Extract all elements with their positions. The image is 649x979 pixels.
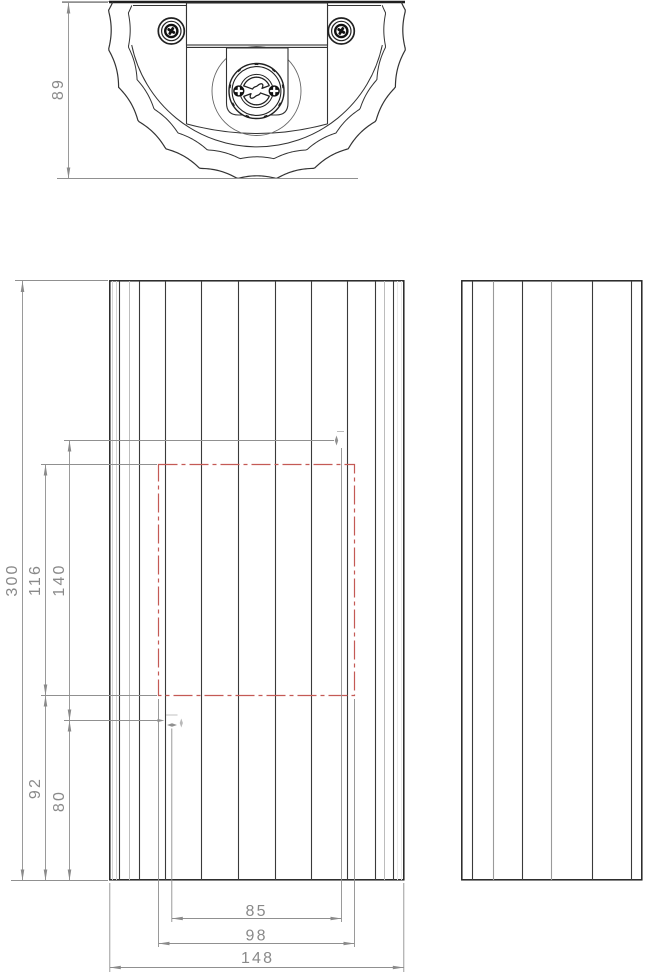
svg-text:300: 300 [4,563,21,596]
svg-text:98: 98 [245,928,267,945]
svg-text:89: 89 [50,78,67,100]
svg-text:92: 92 [27,777,44,799]
svg-text:148: 148 [241,950,274,967]
svg-text:85: 85 [245,903,267,920]
svg-text:116: 116 [27,564,44,596]
svg-text:80: 80 [51,790,68,812]
svg-text:140: 140 [51,563,68,596]
